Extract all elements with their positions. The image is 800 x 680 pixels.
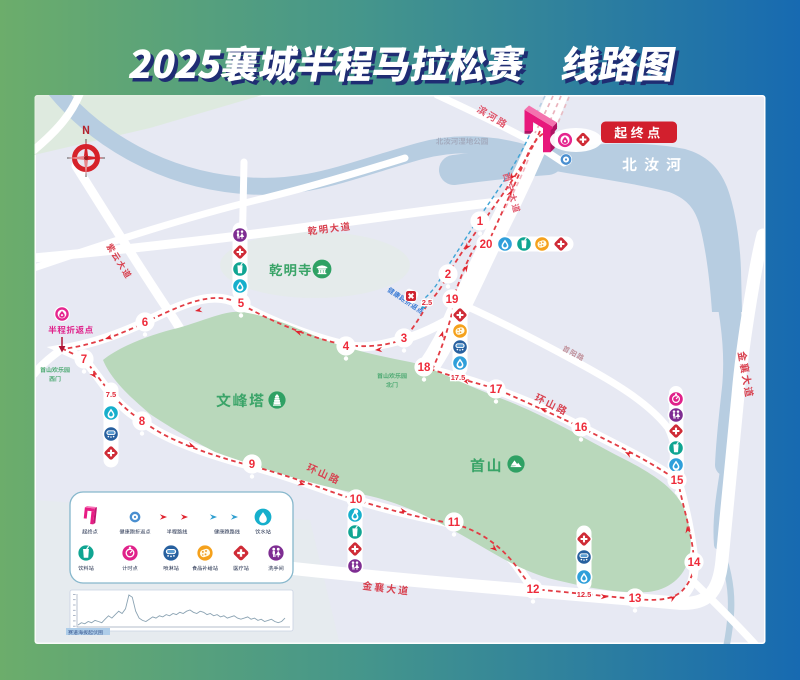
- svg-text:1: 1: [477, 216, 484, 228]
- svg-text:18: 18: [418, 362, 431, 374]
- svg-text:11: 11: [448, 517, 461, 529]
- svg-text:12.5: 12.5: [577, 590, 592, 599]
- svg-text:6: 6: [142, 317, 148, 329]
- svg-text:2: 2: [445, 269, 451, 281]
- svg-text:8: 8: [139, 416, 146, 428]
- svg-text:13: 13: [629, 593, 642, 605]
- svg-text:14: 14: [688, 557, 701, 569]
- svg-text:20: 20: [480, 239, 493, 251]
- svg-text:17.5: 17.5: [451, 373, 466, 382]
- svg-text:15: 15: [671, 475, 684, 487]
- svg-text:2.5: 2.5: [422, 298, 432, 307]
- svg-text:5: 5: [238, 298, 245, 310]
- svg-text:7.5: 7.5: [106, 390, 116, 399]
- svg-text:7: 7: [81, 354, 87, 366]
- svg-text:12: 12: [527, 584, 540, 596]
- svg-text:19: 19: [446, 294, 459, 306]
- svg-text:9: 9: [249, 459, 255, 471]
- svg-text:10: 10: [350, 494, 363, 506]
- svg-text:3: 3: [401, 333, 407, 345]
- svg-text:4: 4: [343, 341, 350, 353]
- svg-text:16: 16: [575, 422, 588, 434]
- svg-text:17: 17: [490, 384, 503, 396]
